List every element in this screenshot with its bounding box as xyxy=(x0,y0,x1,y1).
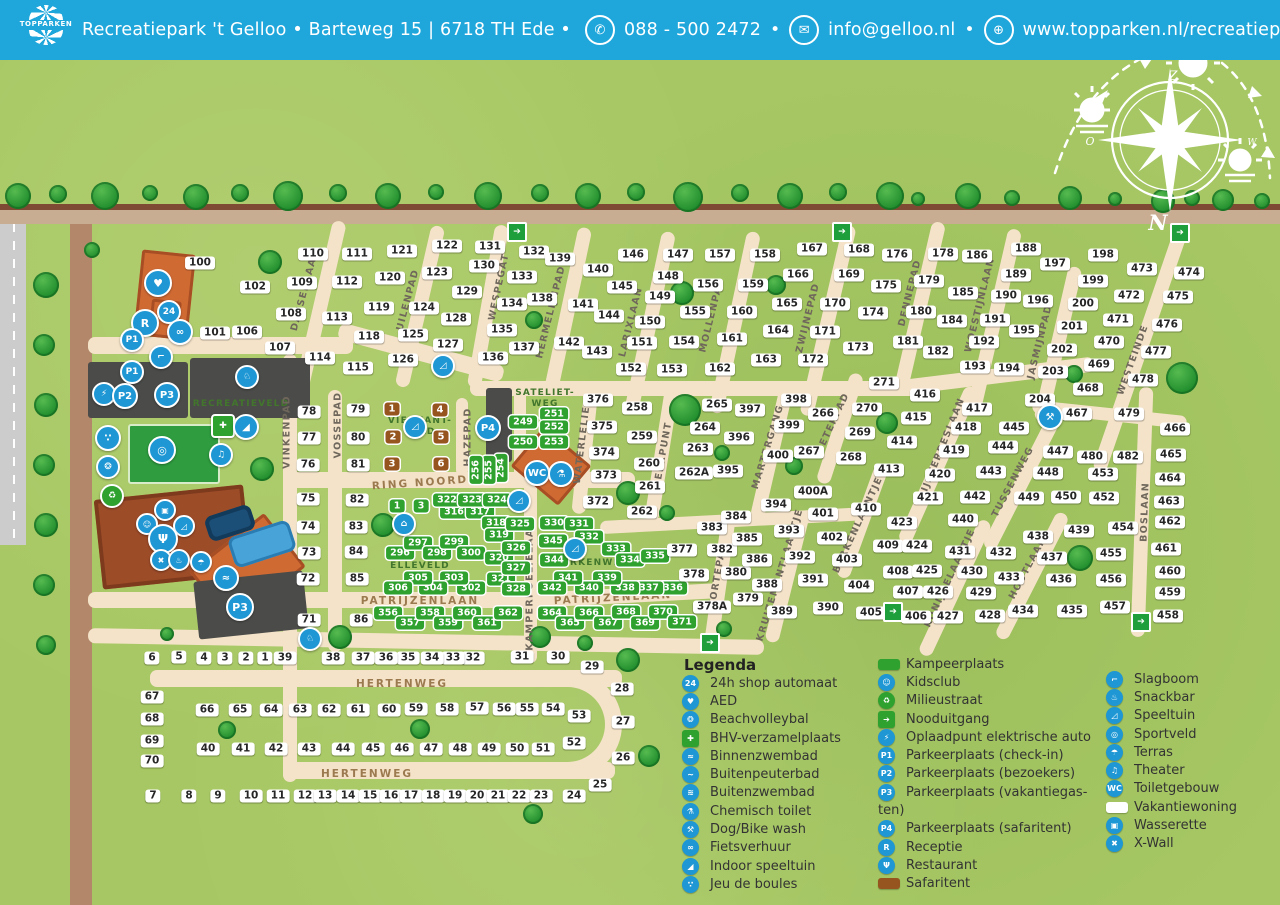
plot-marker-410: 410 xyxy=(851,503,881,516)
plot-marker-467: 467 xyxy=(1062,408,1092,421)
plot-marker-149: 149 xyxy=(645,291,675,304)
plot-marker-28: 28 xyxy=(611,683,634,696)
logo-pinwheel-top xyxy=(29,5,63,20)
plot-marker-175: 175 xyxy=(871,280,901,293)
legend-item: ♻Milieustraat xyxy=(878,692,1091,710)
plot-marker-460: 460 xyxy=(1155,566,1185,579)
plot-marker-401: 401 xyxy=(808,508,838,521)
legend-item: ☺Kidsclub xyxy=(878,673,1091,691)
legend-title: Legenda xyxy=(684,656,756,674)
plot-marker-389: 389 xyxy=(767,606,797,619)
milieu-icon: ♻ xyxy=(878,692,895,709)
plot-marker-386: 386 xyxy=(742,554,772,567)
street-label: BOSLAAN xyxy=(1138,482,1151,542)
legend-label: Wasserette xyxy=(1134,818,1207,833)
plot-marker-266: 266 xyxy=(808,408,838,421)
email-icon: ✉ xyxy=(789,15,819,45)
legend-label: Theater xyxy=(1134,763,1185,778)
plot-marker-67: 67 xyxy=(141,691,164,704)
plot-marker-68: 68 xyxy=(141,713,164,726)
plot-marker-75: 75 xyxy=(297,493,320,506)
plot-marker-188: 188 xyxy=(1011,243,1041,256)
aed-icon: ♥ xyxy=(144,269,172,297)
tree-icon xyxy=(714,445,730,461)
legend-label: Parkeerplaats (safaritent) xyxy=(906,821,1072,836)
speeltuin-icon: ◿ xyxy=(403,415,427,439)
plot-marker-3: 3 xyxy=(385,458,400,471)
plot-marker-434: 434 xyxy=(1008,605,1038,618)
plot-marker-403: 403 xyxy=(832,554,862,567)
safaritent-icon xyxy=(878,878,900,889)
plot-marker-140: 140 xyxy=(583,264,613,277)
plot-marker-146: 146 xyxy=(618,249,648,262)
terras-icon: ☂ xyxy=(190,551,212,573)
plot-marker-123: 123 xyxy=(422,267,452,280)
plot-marker-469: 469 xyxy=(1084,359,1114,372)
plot-marker-250: 250 xyxy=(509,436,537,449)
plot-marker-136: 136 xyxy=(478,352,508,365)
plot-marker-79: 79 xyxy=(347,404,370,417)
plot-marker-56: 56 xyxy=(493,703,516,716)
plot-marker-163: 163 xyxy=(751,354,781,367)
plot-marker-193: 193 xyxy=(960,361,990,374)
plot-marker-438: 438 xyxy=(1023,531,1053,544)
plot-marker-77: 77 xyxy=(298,432,321,445)
plot-marker-59: 59 xyxy=(405,703,428,716)
legend-item: ∵Jeu de boules xyxy=(682,875,841,893)
plot-marker-402: 402 xyxy=(817,532,847,545)
plot-marker-27: 27 xyxy=(612,716,635,729)
plot-marker-37: 37 xyxy=(352,652,375,665)
legend-label: Terras xyxy=(1134,745,1173,760)
plot-marker-63: 63 xyxy=(289,704,312,717)
plot-marker-69: 69 xyxy=(141,735,164,748)
plot-marker-145: 145 xyxy=(607,281,637,294)
plot-marker-153: 153 xyxy=(657,364,687,377)
plot-marker-336: 336 xyxy=(659,582,687,595)
plot-marker-42: 42 xyxy=(265,743,288,756)
plot-marker-417: 417 xyxy=(962,403,992,416)
theater-icon: ♫ xyxy=(1106,762,1123,779)
tree-icon xyxy=(160,627,174,641)
plot-marker-171: 171 xyxy=(810,326,840,339)
dog-icon: ♘ xyxy=(235,365,259,389)
plot-marker-11: 11 xyxy=(267,790,290,803)
plot-marker-264: 264 xyxy=(690,422,720,435)
tree-icon xyxy=(876,182,904,210)
legend-label: Speeltuin xyxy=(1134,708,1195,723)
tree-icon xyxy=(33,574,55,596)
legend-item: ten) xyxy=(878,801,1091,819)
plot-marker-430: 430 xyxy=(957,566,987,579)
plot-marker-457: 457 xyxy=(1100,601,1130,614)
tree-icon xyxy=(627,183,645,201)
plot-marker-413: 413 xyxy=(874,464,904,477)
plot-marker-22: 22 xyxy=(508,790,531,803)
legend-item: P1Parkeerplaats (check-in) xyxy=(878,746,1091,764)
plot-marker-58: 58 xyxy=(436,703,459,716)
plot-marker-2: 2 xyxy=(386,431,401,444)
plot-marker-198: 198 xyxy=(1088,249,1118,262)
snackbar-icon: ♨ xyxy=(168,549,190,571)
legend-item: ❂Beachvolleybal xyxy=(682,711,841,729)
bhv-icon: ✚ xyxy=(211,414,235,438)
legend-label: Chemisch toilet xyxy=(710,804,811,819)
plot-marker-1: 1 xyxy=(385,403,400,416)
plot-marker-143: 143 xyxy=(582,346,612,359)
tree-icon xyxy=(1166,362,1198,394)
kidsclub-icon: ☺ xyxy=(878,674,895,691)
chemisch-icon: ⚗ xyxy=(682,803,699,820)
plot-marker-1: 1 xyxy=(390,500,405,513)
plot-marker-54: 54 xyxy=(542,703,565,716)
plot-marker-376: 376 xyxy=(583,394,613,407)
compass-letter-o: O xyxy=(1085,135,1094,148)
tree-icon xyxy=(33,454,55,476)
plot-marker-49: 49 xyxy=(478,743,501,756)
legend-label: Receptie xyxy=(906,840,963,855)
plot-marker-157: 157 xyxy=(705,249,735,262)
plot-marker-400A: 400A xyxy=(794,486,832,499)
plot-marker-450: 450 xyxy=(1051,491,1081,504)
beach-icon: ❂ xyxy=(682,711,699,728)
plot-marker-362: 362 xyxy=(494,607,522,620)
legend-item: ♥AED xyxy=(682,692,841,710)
phone-icon: ✆ xyxy=(585,15,615,45)
plot-marker-189: 189 xyxy=(1001,269,1031,282)
plot-marker-29: 29 xyxy=(581,661,604,674)
plot-marker-253: 253 xyxy=(540,436,568,449)
plot-marker-408: 408 xyxy=(883,566,913,579)
legend-label: Slagboom xyxy=(1134,672,1199,687)
plot-marker-322: 322 xyxy=(433,494,461,507)
plot-marker-182: 182 xyxy=(923,346,953,359)
plot-marker-200: 200 xyxy=(1068,298,1098,311)
legend-item: P2Parkeerplaats (bezoekers) xyxy=(878,765,1091,783)
legend-label: Kidsclub xyxy=(906,675,960,690)
tree-icon xyxy=(410,719,430,739)
plot-marker-429: 429 xyxy=(966,587,996,600)
plot-marker-172: 172 xyxy=(798,354,828,367)
header-bar: TOPPARKEN Recreatiepark 't Gelloo • Bart… xyxy=(0,0,1280,60)
plot-marker-398: 398 xyxy=(781,394,811,407)
toiletgebouw-icon: WC xyxy=(524,460,550,486)
plot-marker-444: 444 xyxy=(988,441,1018,454)
plot-marker-190: 190 xyxy=(991,290,1021,303)
plot-marker-23: 23 xyxy=(530,790,553,803)
tree-icon xyxy=(777,183,803,209)
plot-marker-133: 133 xyxy=(507,271,537,284)
plot-marker-73: 73 xyxy=(298,547,321,560)
plot-marker-8: 8 xyxy=(181,790,196,803)
tree-icon xyxy=(183,184,209,210)
plot-marker-158: 158 xyxy=(750,249,780,262)
plot-marker-30: 30 xyxy=(547,651,570,664)
plot-marker-78: 78 xyxy=(298,406,321,419)
street-label: VOSSEPAD xyxy=(333,392,344,459)
legend-item: ◎Sportveld xyxy=(1106,725,1237,743)
tree-icon xyxy=(1067,545,1093,571)
plot-marker-84: 84 xyxy=(345,546,368,559)
plot-marker-470: 470 xyxy=(1094,336,1124,349)
legend-item: P4Parkeerplaats (safaritent) xyxy=(878,820,1091,838)
plot-marker-432: 432 xyxy=(986,547,1016,560)
legend-label: X-Wall xyxy=(1134,836,1174,851)
nooduitgang-icon: ➔ xyxy=(878,711,895,728)
legend-column: 2424h shop automaat♥AED❂Beachvolleybal✚B… xyxy=(682,674,841,894)
plot-marker-300: 300 xyxy=(457,547,485,560)
plot-marker-325: 325 xyxy=(506,518,534,531)
legend-item: ➔Nooduitgang xyxy=(878,710,1091,728)
plot-marker-478: 478 xyxy=(1128,374,1158,387)
plot-marker-459: 459 xyxy=(1155,587,1185,600)
theater-icon: ♫ xyxy=(209,443,233,467)
plot-marker-166: 166 xyxy=(783,269,813,282)
legend-item: ◿Speeltuin xyxy=(1106,707,1237,725)
legend-item: ◢Indoor speeltuin xyxy=(682,857,841,875)
plot-marker-32: 32 xyxy=(462,652,485,665)
plot-marker-81: 81 xyxy=(347,459,370,472)
plot-marker-185: 185 xyxy=(948,287,978,300)
tree-icon xyxy=(36,635,56,655)
plot-marker-262: 262 xyxy=(627,506,657,519)
area-label: RECREATIEVELD xyxy=(193,399,290,409)
plot-marker-137: 137 xyxy=(509,342,539,355)
plot-marker-453: 453 xyxy=(1088,468,1118,481)
plot-marker-38: 38 xyxy=(322,652,345,665)
plot-marker-165: 165 xyxy=(772,298,802,311)
plot-marker-43: 43 xyxy=(298,743,321,756)
plot-marker-424: 424 xyxy=(902,540,932,553)
legend-item: ♫Theater xyxy=(1106,761,1237,779)
plot-marker-372: 372 xyxy=(583,496,613,509)
plot-marker-134: 134 xyxy=(497,298,527,311)
plot-marker-344: 344 xyxy=(540,554,568,567)
plot-marker-199: 199 xyxy=(1078,275,1108,288)
tree-icon xyxy=(474,182,502,210)
tree-icon xyxy=(5,183,31,209)
plot-marker-80: 80 xyxy=(347,432,370,445)
tree-icon xyxy=(1004,190,1020,206)
plot-marker-127: 127 xyxy=(433,339,463,352)
plot-marker-330: 330 xyxy=(540,517,568,530)
plot-marker-102: 102 xyxy=(240,281,270,294)
plot-marker-4: 4 xyxy=(433,404,448,417)
plot-marker-435: 435 xyxy=(1057,605,1087,618)
plot-marker-122: 122 xyxy=(432,240,462,253)
terras-icon: ☂ xyxy=(1106,744,1123,761)
plot-marker-184: 184 xyxy=(937,315,967,328)
plot-marker-252: 252 xyxy=(540,421,568,434)
plot-marker-405: 405 xyxy=(856,607,886,620)
plot-marker-65: 65 xyxy=(229,704,252,717)
plot-marker-378A: 378A xyxy=(693,601,731,614)
plot-marker-477: 477 xyxy=(1141,346,1171,359)
plot-marker-110: 110 xyxy=(298,248,328,261)
plot-marker-118: 118 xyxy=(354,331,384,344)
plot-marker-60: 60 xyxy=(378,704,401,717)
plot-marker-176: 176 xyxy=(882,249,912,262)
public-road xyxy=(0,205,26,545)
plot-marker-33: 33 xyxy=(442,652,465,665)
legend-item: ∼Buitenpeuterbad xyxy=(682,765,841,783)
legend-item: ⚗Chemisch toilet xyxy=(682,802,841,820)
dog-icon: ♘ xyxy=(298,627,322,651)
plot-marker-1: 1 xyxy=(257,652,272,665)
binnenzwembad-icon: ≈ xyxy=(213,565,239,591)
plot-marker-442: 442 xyxy=(960,491,990,504)
speeltuin-icon: ◿ xyxy=(1106,707,1123,724)
plot-marker-371: 371 xyxy=(668,616,696,629)
plot-marker-427: 427 xyxy=(933,611,963,624)
plot-marker-101: 101 xyxy=(200,327,230,340)
plot-marker-384: 384 xyxy=(721,511,751,524)
plot-marker-164: 164 xyxy=(763,325,793,338)
plot-marker-173: 173 xyxy=(843,342,873,355)
website-link[interactable]: www.topparken.nl/recreatiepark-t-gelloo xyxy=(1023,20,1280,40)
topparken-logo[interactable]: TOPPARKEN xyxy=(18,3,74,59)
legend-column: Kampeerplaats☺Kidsclub♻Milieustraat➔Nood… xyxy=(878,655,1091,893)
plot-marker-461: 461 xyxy=(1151,543,1181,556)
plot-marker-112: 112 xyxy=(332,276,362,289)
tree-icon xyxy=(911,192,925,206)
plot-marker-13: 13 xyxy=(314,790,337,803)
buitenpeuterbad-icon: ∼ xyxy=(682,766,699,783)
tree-icon xyxy=(218,721,236,739)
plot-marker-48: 48 xyxy=(449,743,472,756)
sportveld-icon: ◎ xyxy=(1106,726,1123,743)
plot-marker-260: 260 xyxy=(634,458,664,471)
plot-marker-17: 17 xyxy=(400,790,423,803)
p3-icon: P3 xyxy=(878,784,895,801)
plot-marker-168: 168 xyxy=(844,244,874,257)
park-map: TOPPARKEN Recreatiepark 't Gelloo • Bart… xyxy=(0,0,1280,905)
plot-marker-7: 7 xyxy=(145,790,160,803)
area-label: SATELIET- xyxy=(515,388,575,398)
plot-marker-9: 9 xyxy=(210,790,225,803)
plot-marker-335: 335 xyxy=(641,550,669,563)
plot-marker-476: 476 xyxy=(1152,319,1182,332)
plot-marker-404: 404 xyxy=(844,580,874,593)
email-link[interactable]: info@gelloo.nl xyxy=(828,20,955,40)
tree-icon xyxy=(955,183,981,209)
plot-marker-115: 115 xyxy=(343,362,373,375)
slagboom-icon: ⌐ xyxy=(1106,671,1123,688)
p4-icon: P4 xyxy=(475,415,501,441)
plot-marker-259: 259 xyxy=(627,431,657,444)
legend-label: Parkeerplaats (bezoekers) xyxy=(906,766,1075,781)
plot-marker-462: 462 xyxy=(1155,516,1185,529)
legend-item: ∞Fietsverhuur xyxy=(682,839,841,857)
sunpath-arrow-icon xyxy=(1248,86,1262,98)
plot-marker-475: 475 xyxy=(1163,291,1193,304)
plot-marker-35: 35 xyxy=(397,652,420,665)
plot-marker-141: 141 xyxy=(568,299,598,312)
plot-marker-3: 3 xyxy=(217,652,232,665)
legend-item: ⚡Oplaadpunt elektrische auto xyxy=(878,728,1091,746)
plot-marker-449: 449 xyxy=(1014,492,1044,505)
compass-letter-n: N xyxy=(1147,210,1168,235)
street-label: PATRIJZENLAAN xyxy=(361,595,479,607)
legend-label: 24h shop automaat xyxy=(710,676,837,691)
plot-marker-135: 135 xyxy=(487,324,517,337)
legend-item: Vakantiewoning xyxy=(1106,798,1237,816)
plot-marker-156: 156 xyxy=(693,279,723,292)
plot-marker-480: 480 xyxy=(1077,451,1107,464)
legend-label: Parkeerplaats (vakantiegas- xyxy=(906,785,1087,800)
plot-marker-21: 21 xyxy=(487,790,510,803)
plot-marker-399: 399 xyxy=(774,420,804,433)
wasserette-icon: ▣ xyxy=(1106,817,1123,834)
plot-marker-394: 394 xyxy=(761,499,791,512)
xwall-icon: ✖ xyxy=(1106,835,1123,852)
tree-icon xyxy=(34,393,58,417)
plot-marker-471: 471 xyxy=(1103,314,1133,327)
plot-marker-397: 397 xyxy=(735,404,765,417)
legend-label: Beachvolleybal xyxy=(710,712,809,727)
plot-marker-406: 406 xyxy=(901,611,931,624)
legend-label: Toiletgebouw xyxy=(1134,781,1219,796)
legend-label: Dog/Bike wash xyxy=(710,822,806,837)
plot-marker-334: 334 xyxy=(616,554,644,567)
plot-marker-382: 382 xyxy=(707,544,737,557)
p1-icon: P1 xyxy=(878,747,895,764)
shop24-icon: 24 xyxy=(682,675,699,692)
plot-marker-113: 113 xyxy=(322,312,352,325)
dogwash-icon: ⚒ xyxy=(1037,404,1063,430)
plot-marker-378: 378 xyxy=(679,569,709,582)
plot-marker-57: 57 xyxy=(466,702,489,715)
legend-label: Jeu de boules xyxy=(710,877,797,892)
plot-marker-374: 374 xyxy=(589,447,619,460)
plot-marker-31: 31 xyxy=(511,651,534,664)
park-title: Recreatiepark 't Gelloo • Barteweg 15 | … xyxy=(82,20,571,40)
plot-marker-41: 41 xyxy=(232,743,255,756)
legend-label: Vakantiewoning xyxy=(1134,800,1237,815)
plot-marker-70: 70 xyxy=(141,755,164,768)
plot-marker-129: 129 xyxy=(452,286,482,299)
plot-marker-14: 14 xyxy=(337,790,360,803)
nooduitgang-icon: ➔ xyxy=(700,633,720,653)
plot-marker-154: 154 xyxy=(669,336,699,349)
tree-icon xyxy=(673,182,703,212)
plot-marker-419: 419 xyxy=(939,445,969,458)
plot-marker-437: 437 xyxy=(1037,552,1067,565)
plot-marker-425: 425 xyxy=(912,565,942,578)
plot-marker-337: 337 xyxy=(635,582,663,595)
plot-marker-455: 455 xyxy=(1096,548,1126,561)
plot-marker-423: 423 xyxy=(887,517,917,530)
plot-marker-465: 465 xyxy=(1156,449,1186,462)
plot-marker-181: 181 xyxy=(893,336,923,349)
plot-marker-418: 418 xyxy=(951,422,981,435)
oplaadpunt-icon: ⚡ xyxy=(878,729,895,746)
plot-marker-421: 421 xyxy=(913,492,943,505)
plot-marker-203: 203 xyxy=(1038,366,1068,379)
legend-item: ✖X-Wall xyxy=(1106,835,1237,853)
plot-marker-414: 414 xyxy=(887,436,917,449)
legend-item: ΨRestaurant xyxy=(878,856,1091,874)
plot-marker-431: 431 xyxy=(945,546,975,559)
plot-marker-186: 186 xyxy=(962,250,992,263)
legend-item: ♨Snackbar xyxy=(1106,688,1237,706)
plot-marker-249: 249 xyxy=(509,416,537,429)
plot-marker-468: 468 xyxy=(1073,383,1103,396)
plot-marker-482: 482 xyxy=(1113,451,1143,464)
plot-marker-391: 391 xyxy=(798,574,828,587)
phone-number[interactable]: 088 - 500 2472 xyxy=(624,20,761,40)
jeu-icon: ∵ xyxy=(95,425,121,451)
